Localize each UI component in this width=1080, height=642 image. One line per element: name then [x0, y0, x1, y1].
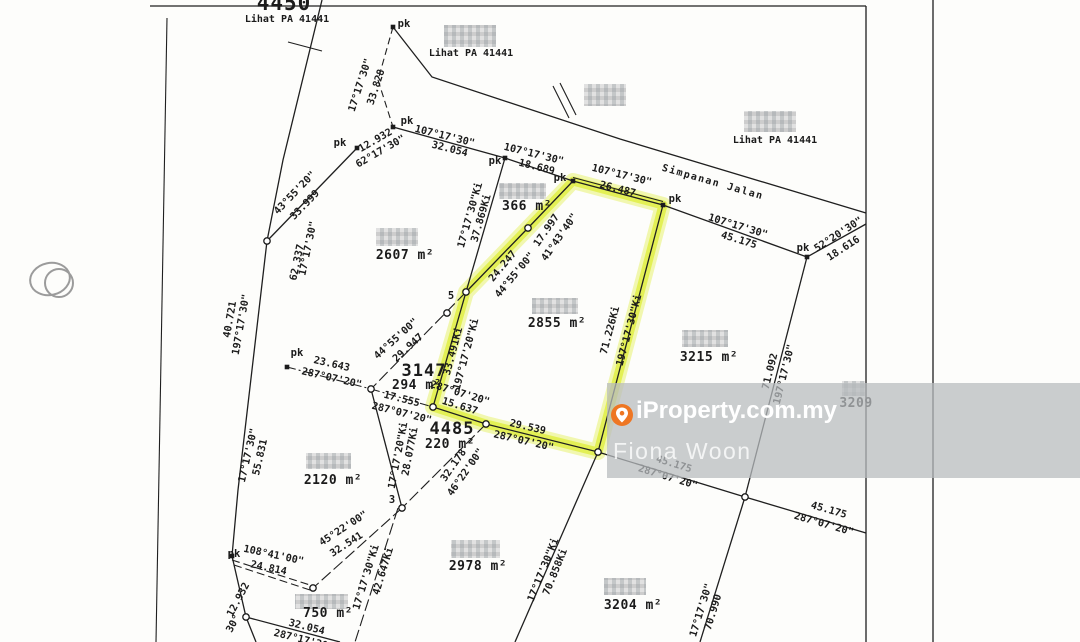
survey-map-svg: 4450Lihat PA 41441Lihat PA 41441Lihat PA… [0, 0, 1080, 642]
pk-marker [661, 203, 666, 208]
pencil-doodle [27, 259, 73, 299]
node-number: 3 [389, 494, 395, 506]
node-circle [595, 449, 601, 455]
pk-marker [285, 365, 290, 370]
watermark: iProperty.com.my Fiona Woon [607, 383, 1080, 478]
node-circle [264, 238, 270, 244]
node-circle [399, 505, 405, 511]
node-circle [368, 386, 374, 392]
redaction-block [744, 111, 796, 132]
cadastral-survey-map: 4450Lihat PA 41441Lihat PA 41441Lihat PA… [0, 0, 1080, 642]
node-circle [243, 614, 249, 620]
lot-area: 220 m² [425, 437, 475, 452]
pk-label: pk [291, 347, 304, 359]
redaction-block [499, 183, 546, 199]
node-circle [430, 404, 436, 410]
watermark-agent-name: Fiona Woon [613, 438, 752, 465]
pk-label: pk [334, 137, 347, 149]
redaction-block [376, 228, 418, 246]
node-circle [310, 585, 316, 591]
reference-note: Lihat PA 41441 [733, 134, 817, 146]
redaction-block [306, 453, 351, 469]
pk-marker [391, 25, 396, 30]
iproperty-logo-icon [610, 403, 634, 427]
redaction-block [444, 25, 496, 47]
pk-marker [805, 255, 810, 260]
redaction-block [682, 330, 728, 347]
lot-number-4485: 4485 [430, 419, 475, 439]
pk-marker [391, 125, 396, 130]
pk-label: pk [797, 242, 810, 254]
pk-label: pk [669, 193, 682, 205]
reference-note: Lihat PA 41441 [245, 13, 329, 25]
map-labels-layer: 4450Lihat PA 41441Lihat PA 41441Lihat PA… [222, 0, 873, 642]
redaction-block [604, 578, 646, 595]
pk-label: pk [228, 548, 241, 560]
pk-label: pk [554, 172, 567, 184]
pk-marker [503, 156, 508, 161]
lot-area: 3204 m² [604, 598, 662, 613]
node-circle [444, 310, 450, 316]
node-circle [483, 421, 489, 427]
lot-number-4450: 4450 [257, 0, 312, 15]
lot-area: 2120 m² [304, 473, 362, 488]
reference-note: Lihat PA 41441 [429, 47, 513, 59]
lot-area: 3215 m² [680, 350, 738, 365]
node-circle [463, 289, 469, 295]
lot-area: 366 m² [502, 199, 552, 214]
highlighted-lot-area: 2855 m² [528, 316, 586, 331]
node-circle [742, 494, 748, 500]
watermark-brand: iProperty.com.my [636, 397, 837, 425]
lot-area: 2607 m² [376, 248, 434, 263]
lot-area: 2978 m² [449, 559, 507, 574]
node-circle [525, 225, 531, 231]
redaction-block [451, 540, 500, 558]
redaction-block [584, 84, 626, 106]
lot-area: 750 m² [303, 606, 353, 621]
pk-label: pk [398, 18, 411, 30]
node-number: 5 [448, 290, 454, 302]
distance-label: 12.932 [225, 581, 252, 619]
pk-marker [571, 179, 576, 184]
pk-label: pk [489, 155, 502, 167]
redaction-block [532, 298, 578, 314]
bearing-label: 30° [225, 613, 243, 634]
pk-label: pk [401, 115, 414, 127]
